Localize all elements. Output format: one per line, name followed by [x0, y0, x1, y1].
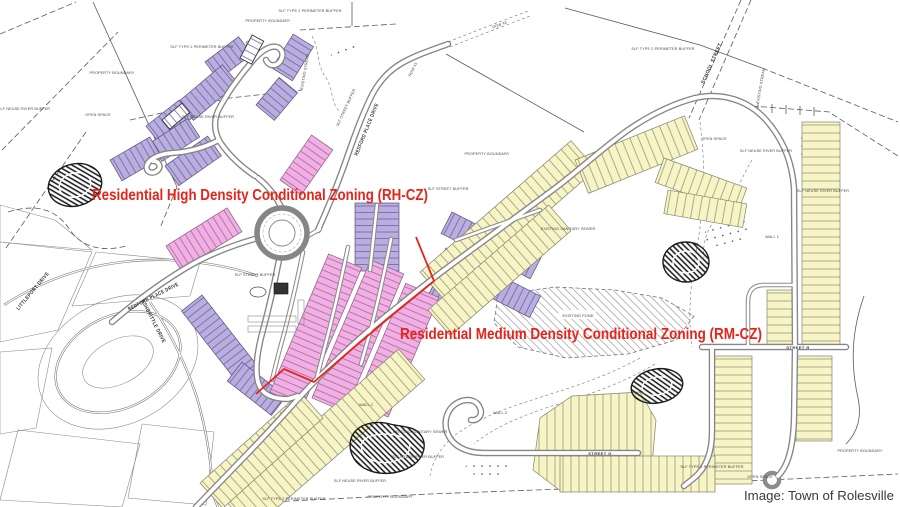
annotation-label: OPEN SPACE: [85, 113, 111, 117]
pond: [663, 242, 709, 282]
annotation-label: SLF TYPE 2 PERIMETER BUFFER: [170, 45, 233, 49]
annotation-label: ROW 43: [492, 21, 508, 30]
annotation-label: SLF NEUSE RIVER BUFFER: [0, 107, 50, 111]
annotation-label: SLF TYPE 2 PERIMETER BUFFER: [680, 465, 743, 469]
annotation-label: SLF TYPE 2 PERIMETER BUFFER: [262, 497, 325, 501]
annotation-label: SLF TYPE 2 PERIMETER BUFFER: [631, 47, 694, 51]
site-plan: PROPERTY BOUNDARY PROPERTY BOUNDARY PROP…: [0, 0, 900, 507]
annotation-label: EXISTING POND: [562, 314, 593, 318]
clubhouse-building: [274, 283, 288, 294]
annotation-label: SLF TYPE 2 PERIMETER BUFFER: [278, 9, 341, 13]
roundabout: [257, 208, 307, 258]
annotation-label: SLF STREET BUFFER: [336, 88, 357, 127]
site-plan-map: PROPERTY BOUNDARY PROPERTY BOUNDARY PROP…: [0, 0, 900, 507]
zone-label-medium-density: Residential Medium Density Conditional Z…: [400, 326, 762, 343]
annotation-label: PROPERTY BOUNDARY: [838, 449, 883, 453]
annotation-label: PROPERTY BOUNDARY: [465, 152, 510, 156]
annotation-label: SLF STREET BUFFER: [428, 187, 469, 191]
annotation-label: SLF NEUSE RIVER BUFFER: [740, 149, 792, 153]
street-label-littleport-drive: LITTLEPORT DRIVE: [16, 271, 51, 312]
pool: [250, 287, 266, 297]
annotation-label: PROPERTY BOUNDARY: [90, 71, 135, 75]
annotation-label: PROPERTY BOUNDARY: [246, 19, 291, 23]
annotation-label: ROW 43: [408, 62, 418, 77]
annotation-label: WALL 1: [765, 235, 779, 239]
parking-row: [248, 326, 296, 332]
annotation-label: EXISTING SANITARY SEWER: [541, 227, 596, 231]
image-attribution: Image: Town of Rolesville: [744, 488, 894, 503]
annotation-label: PROPERTY BOUNDARY: [368, 495, 413, 499]
annotation-label: OPEN SPACE: [701, 137, 727, 141]
street-label-street-h: STREET H: [786, 345, 809, 350]
pond: [43, 158, 106, 213]
street-label-school-street: SCHOOL STREET: [700, 42, 724, 85]
annotation-label: SLF NEUSE RIVER BUFFER: [797, 189, 849, 193]
annotation-label: SLF NEUSE RIVER BUFFER: [182, 115, 234, 119]
annotation-label: WALL 3: [493, 411, 507, 415]
annotation-label: WALL 2: [359, 403, 373, 407]
annotation-label: SLF STREET BUFFER: [235, 273, 276, 277]
annotation-label: EXISTING SANITARY SEWER: [393, 430, 448, 434]
zone-label-high-density: Residential High Density Conditional Zon…: [92, 187, 428, 204]
annotation-label: OPEN SPACE: [747, 475, 773, 479]
street-label-street-g: STREET G: [588, 451, 612, 456]
annotation-label: EXISTING STREAM: [756, 68, 766, 104]
future-row-line: [448, 11, 528, 42]
annotation-label: SLF NEUSE RIVER BUFFER: [392, 455, 444, 459]
annotation-label: SLF NEUSE RIVER BUFFER: [334, 479, 386, 483]
